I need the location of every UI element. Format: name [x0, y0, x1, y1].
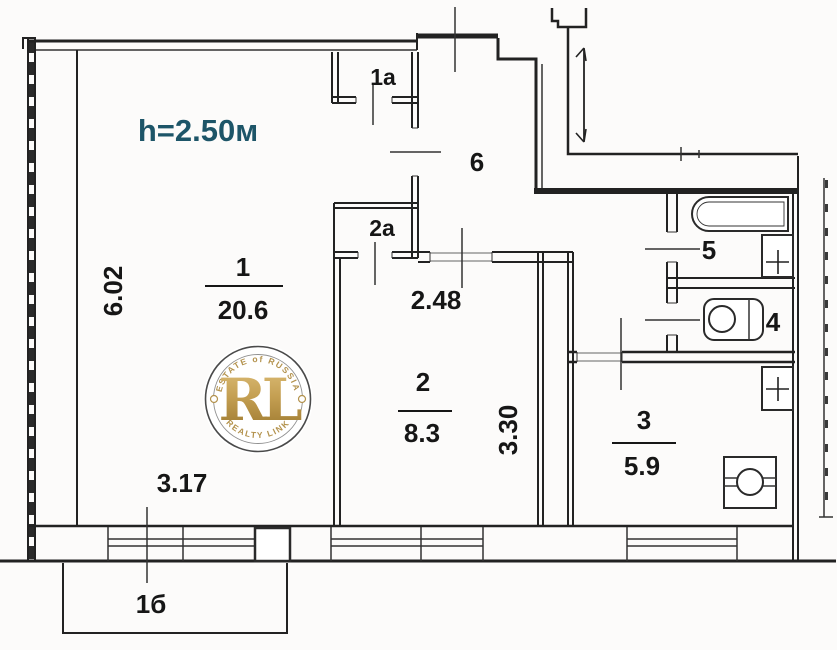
- room6-number: 6: [470, 147, 484, 177]
- room2-area: 8.3: [404, 418, 440, 448]
- closet-1a-label: 1a: [370, 64, 396, 90]
- dim-2-48: 2.48: [411, 285, 462, 315]
- kitchen-window: [627, 527, 737, 561]
- right-outer-wall: [793, 156, 798, 561]
- top-step-wall: [498, 38, 536, 191]
- watermark-logo: ESTATE of RUSSIA REALTY LINK RL: [203, 344, 313, 454]
- room2-number: 2: [416, 367, 430, 397]
- floorplan-drawing: h=2.50м 1 20.6 6.02 3.17 2 8.3 2.48 3.30…: [0, 0, 837, 650]
- watermark-right-dot: [299, 396, 306, 403]
- windows: [108, 527, 737, 561]
- left-outer-wall: [23, 38, 36, 561]
- room4-number: 4: [766, 307, 781, 337]
- stove-icon: [724, 457, 776, 508]
- balcony-label: 1б: [136, 589, 167, 619]
- bathtub-icon: [692, 197, 788, 231]
- landing-wall: [568, 28, 798, 154]
- balcony-door: [255, 528, 290, 561]
- stair-landing: [552, 8, 798, 161]
- toilet-icon: [704, 299, 763, 340]
- room5-number: 5: [702, 235, 716, 265]
- closet-2a-label: 2a: [369, 215, 395, 241]
- bath-wc-divider-wall: [667, 278, 795, 288]
- watermark-left-dot: [211, 396, 218, 403]
- vent-box-kitchen-icon: [762, 367, 793, 410]
- landing-top-hook: [552, 8, 586, 27]
- ceiling-height-label: h=2.50м: [138, 113, 258, 148]
- room1-window: [108, 527, 255, 561]
- labels: h=2.50м 1 20.6 6.02 3.17 2 8.3 2.48 3.30…: [98, 64, 781, 619]
- floorplan-page: h=2.50м 1 20.6 6.02 3.17 2 8.3 2.48 3.30…: [0, 0, 837, 650]
- room1-area: 20.6: [218, 295, 269, 325]
- room3-number: 3: [637, 405, 651, 435]
- room1-number: 1: [236, 252, 250, 282]
- watermark-initials: RL: [219, 366, 302, 434]
- dim-6-02: 6.02: [98, 266, 128, 317]
- dim-3-17: 3.17: [157, 468, 208, 498]
- neighbour-wall-line: [819, 178, 833, 517]
- room2-top-wall: [418, 228, 573, 288]
- room2-window: [331, 527, 483, 561]
- room2-kitchen-shaft: [538, 252, 573, 526]
- room6-room1-wall: [390, 103, 441, 203]
- vent-box-bath-icon: [762, 235, 793, 277]
- dim-3-30: 3.30: [493, 405, 523, 456]
- room3-area: 5.9: [624, 451, 660, 481]
- stair-arrow: [576, 48, 586, 142]
- balcony-outline: [63, 563, 287, 633]
